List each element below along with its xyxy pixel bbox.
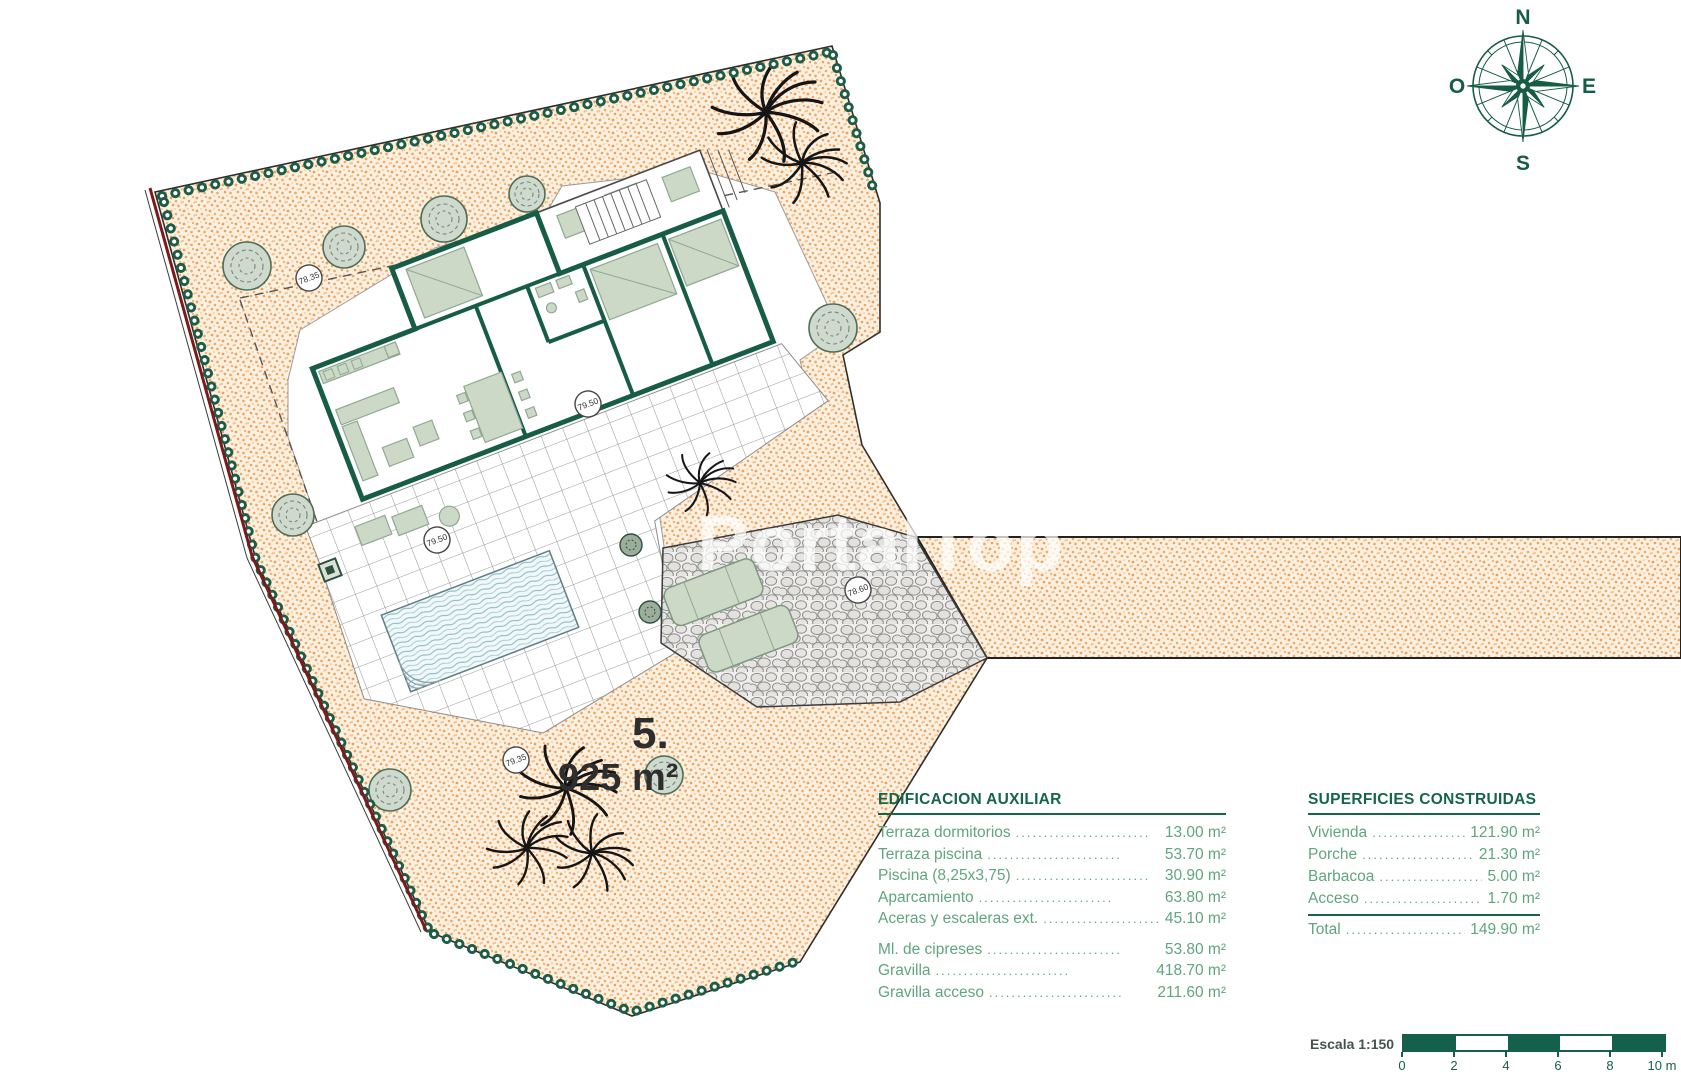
leader-dots: ........................ xyxy=(1016,822,1160,844)
scale-label: Escala 1:150 xyxy=(1310,1036,1394,1052)
row-label: Gravilla xyxy=(878,960,931,982)
scale-tick-label: 8 xyxy=(1588,1058,1632,1073)
row-value: 53.80 m² xyxy=(1165,939,1226,961)
scale-tick-label: 4 xyxy=(1484,1058,1528,1073)
tree xyxy=(369,769,411,811)
cypress xyxy=(639,601,661,623)
compass-east-label: E xyxy=(1582,75,1596,98)
tree xyxy=(509,176,545,212)
row-label: Aceras y escaleras ext. xyxy=(878,908,1038,930)
row-label: Terraza dormitorios xyxy=(878,822,1011,844)
leader-dots: ........................ xyxy=(1016,865,1160,887)
scale-tick-label: 0 xyxy=(1380,1058,1424,1073)
row-label: Terraza piscina xyxy=(878,844,982,866)
table-row: Aceras y escaleras ext. ................… xyxy=(878,908,1226,930)
compass-rose-icon: N S O E xyxy=(1435,0,1615,178)
table-row: Aparcamiento ........................ 63… xyxy=(878,887,1226,909)
built-table-title: SUPERFICIES CONSTRUIDAS xyxy=(1308,791,1540,815)
leader-dots: ........................ xyxy=(936,960,1152,982)
leader-dots: ........................ xyxy=(989,982,1152,1004)
row-value: 1.70 m² xyxy=(1487,888,1540,910)
plot-area-label: 925 m² xyxy=(558,757,678,799)
row-value: 45.10 m² xyxy=(1165,908,1226,930)
tree xyxy=(272,494,314,536)
table-row: Acceso ........................ 1.70 m² xyxy=(1308,888,1540,910)
table-row: Gravilla acceso ........................… xyxy=(878,982,1226,1004)
scale-tick-label: 6 xyxy=(1536,1058,1580,1073)
tree xyxy=(421,196,467,242)
leader-dots: ........................ xyxy=(1372,822,1465,844)
row-label: Vivienda xyxy=(1308,822,1367,844)
row-label: Acceso xyxy=(1308,888,1359,910)
row-label: Porche xyxy=(1308,844,1357,866)
row-value: 30.90 m² xyxy=(1165,865,1226,887)
table-row: Piscina (8,25x3,75) ....................… xyxy=(878,865,1226,887)
scale-tick-label: 2 xyxy=(1432,1058,1476,1073)
leader-dots: ........................ xyxy=(1364,888,1483,910)
row-value: 5.00 m² xyxy=(1487,866,1540,888)
row-label: Gravilla acceso xyxy=(878,982,984,1004)
leader-dots: ........................ xyxy=(987,844,1160,866)
site-plan-page: { "plan": { "plot_number": "5.", "plot_a… xyxy=(0,0,1681,1080)
row-label: Aparcamiento xyxy=(878,887,974,909)
row-label: Barbacoa xyxy=(1308,866,1374,888)
leader-dots: ........................ xyxy=(1043,908,1160,930)
table-row: Terraza piscina ........................… xyxy=(878,844,1226,866)
compass-north-label: N xyxy=(1515,6,1530,29)
row-label: Piscina (8,25x3,75) xyxy=(878,865,1011,887)
leader-dots: ........................ xyxy=(979,887,1160,909)
row-value: 21.30 m² xyxy=(1479,844,1540,866)
built-surfaces-table: SUPERFICIES CONSTRUIDAS Vivienda .......… xyxy=(1308,791,1540,941)
leader-dots: ........................ xyxy=(987,939,1160,961)
aux-table-title: EDIFICACION AUXILIAR xyxy=(878,791,1226,815)
table-row: Barbacoa ........................ 5.00 m… xyxy=(1308,866,1540,888)
table-row: Gravilla ........................ 418.70… xyxy=(878,960,1226,982)
compass-south-label: S xyxy=(1516,152,1530,175)
cypress xyxy=(620,534,642,556)
table-row: Vivienda ........................ 121.90… xyxy=(1308,822,1540,844)
row-label: Total xyxy=(1308,919,1341,941)
row-value: 53.70 m² xyxy=(1165,844,1226,866)
tree xyxy=(809,304,857,352)
tree xyxy=(323,226,365,268)
leader-dots: ........................ xyxy=(1379,866,1482,888)
scale-bar: Escala 1:150 0 2 4 6 8 10 m xyxy=(1310,1032,1681,1080)
row-label: Ml. de cipreses xyxy=(878,939,982,961)
tree xyxy=(223,242,271,290)
compass-west-label: O xyxy=(1449,75,1465,98)
row-value: 418.70 m² xyxy=(1156,960,1226,982)
plot-number-label: 5. xyxy=(632,709,669,758)
leader-dots: ........................ xyxy=(1346,919,1465,941)
scale-bar-segments xyxy=(1402,1034,1666,1052)
access-road xyxy=(917,537,1681,658)
row-value: 211.60 m² xyxy=(1157,982,1226,1004)
table-row: Terraza dormitorios ....................… xyxy=(878,822,1226,844)
aux-buildings-table: EDIFICACION AUXILIAR Terraza dormitorios… xyxy=(878,791,1226,1003)
row-value: 63.80 m² xyxy=(1165,887,1226,909)
row-value: 149.90 m² xyxy=(1470,919,1540,941)
table-row: Porche ........................ 21.30 m² xyxy=(1308,844,1540,866)
table-total-row: Total ........................ 149.90 m² xyxy=(1308,919,1540,941)
row-value: 121.90 m² xyxy=(1470,822,1540,844)
row-value: 13.00 m² xyxy=(1165,822,1226,844)
leader-dots: ........................ xyxy=(1362,844,1474,866)
scale-tick-label: 10 m xyxy=(1640,1058,1681,1073)
table-row: Ml. de cipreses ........................… xyxy=(878,939,1226,961)
total-separator xyxy=(1308,914,1540,916)
